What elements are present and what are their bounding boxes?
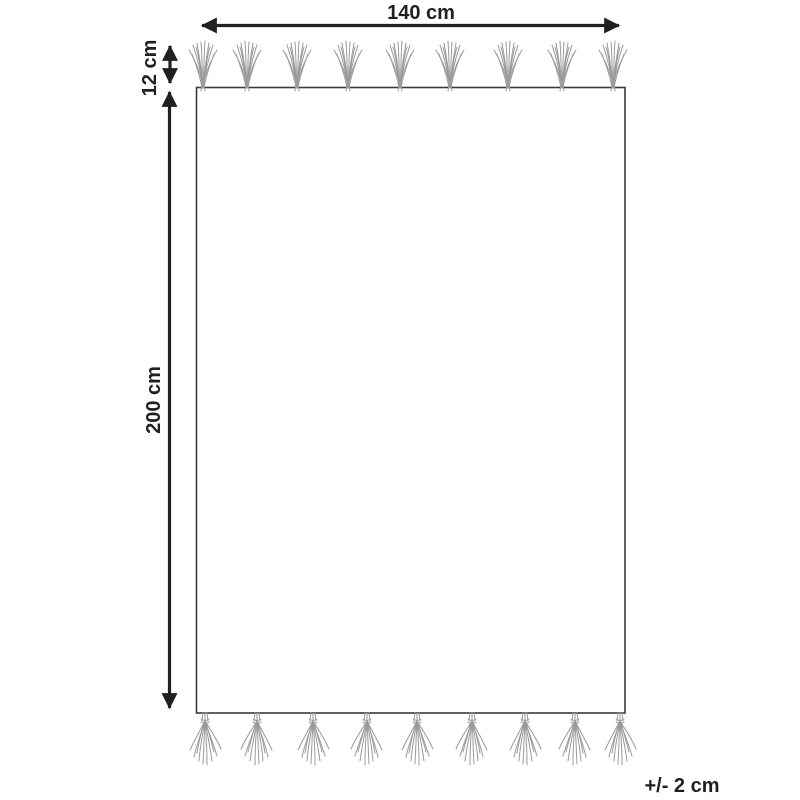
diagram-canvas: 140 cm 12 cm 200 cm +/- 2 cm xyxy=(0,0,800,800)
tassel xyxy=(298,713,329,765)
tassel xyxy=(548,41,576,91)
tassel xyxy=(190,713,221,765)
bottom-tassel-row xyxy=(190,713,636,765)
tassel xyxy=(456,713,487,765)
tassel xyxy=(233,41,261,91)
tassel xyxy=(283,41,311,91)
tassel xyxy=(334,41,362,91)
tassel xyxy=(189,41,217,91)
tassel xyxy=(510,713,541,765)
tassel xyxy=(559,713,590,765)
width-label: 140 cm xyxy=(387,2,455,24)
top-tassel-row xyxy=(189,41,627,91)
tolerance-label: +/- 2 cm xyxy=(644,775,719,797)
rug-outline xyxy=(197,88,626,714)
tassel xyxy=(386,41,414,91)
tassel xyxy=(351,713,382,765)
tassel xyxy=(436,41,464,91)
tassel xyxy=(494,41,522,91)
tassel xyxy=(605,713,636,765)
tassel xyxy=(402,713,433,765)
tassel xyxy=(599,41,627,91)
rug-dimension-diagram: 140 cm 12 cm 200 cm +/- 2 cm xyxy=(0,0,800,800)
fringe-label: 12 cm xyxy=(139,40,161,97)
tassel xyxy=(241,713,272,765)
length-label: 200 cm xyxy=(143,366,165,434)
